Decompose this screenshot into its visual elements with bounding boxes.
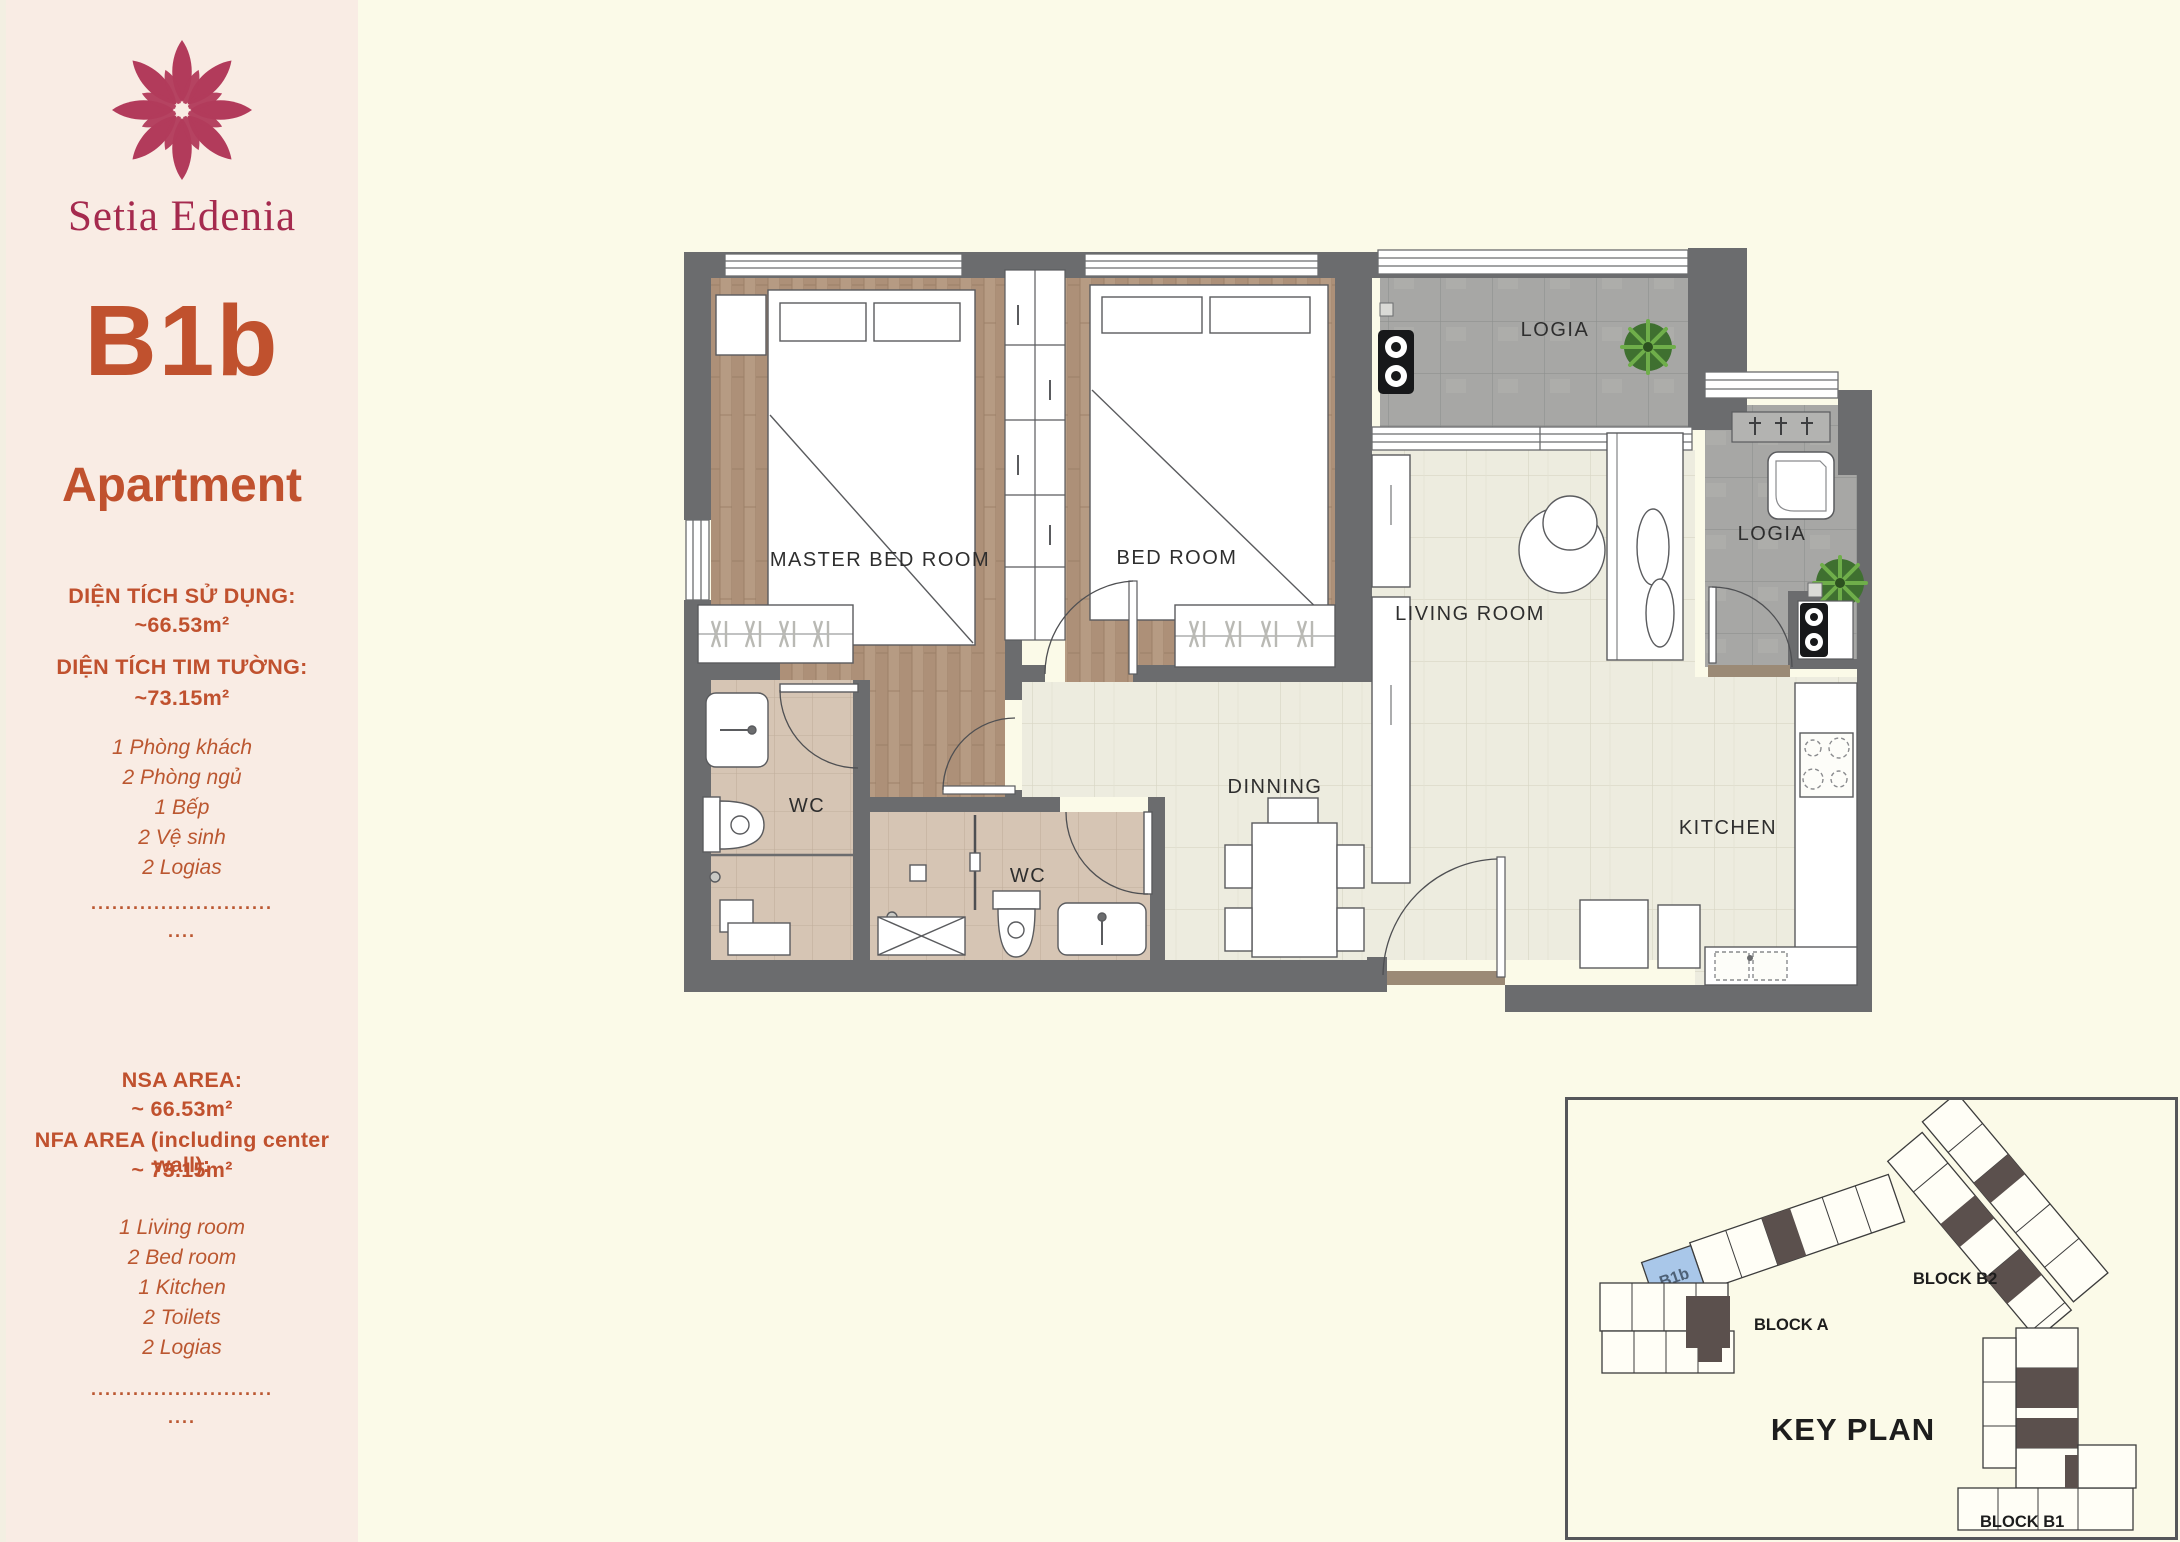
list-item: 1 Bếp bbox=[6, 793, 358, 823]
list-item: 2 Bed room bbox=[6, 1243, 358, 1273]
floor-plan: MASTER BED ROOM BED ROOM LOGIA LIVING RO… bbox=[660, 165, 1890, 1025]
wall-area-label: DIỆN TÍCH TIM TƯỜNG: bbox=[6, 655, 358, 680]
room-label-wc2: WC bbox=[1010, 865, 1046, 887]
nsa-area-value: ~ 66.53m² bbox=[6, 1097, 358, 1122]
key-plan-title: KEY PLAN bbox=[1771, 1412, 1935, 1447]
list-item: 1 Kitchen bbox=[6, 1273, 358, 1303]
plant-icon bbox=[1622, 321, 1674, 373]
bed bbox=[768, 290, 975, 645]
block-b2-label: BLOCK B2 bbox=[1913, 1270, 1997, 1288]
key-plan-panel: B1b BLOCK A bbox=[1565, 1097, 2178, 1540]
threshold bbox=[1708, 665, 1790, 677]
bedroom2-furniture bbox=[1090, 285, 1335, 667]
chair bbox=[1225, 845, 1252, 888]
nsa-area-label: NSA AREA: bbox=[6, 1068, 358, 1093]
dotted-divider: .... bbox=[6, 1407, 358, 1428]
list-item: 2 Logias bbox=[6, 853, 358, 883]
bed bbox=[1090, 285, 1328, 620]
list-item: 2 Toilets bbox=[6, 1303, 358, 1333]
room-label-wc1: WC bbox=[789, 795, 825, 817]
dining-table bbox=[1252, 823, 1337, 957]
cabinet bbox=[1658, 905, 1700, 968]
dotted-divider: .......................... bbox=[6, 1379, 358, 1400]
closet-strip bbox=[1005, 270, 1065, 640]
water-heater bbox=[728, 923, 790, 955]
chair bbox=[1337, 908, 1364, 951]
nightstand bbox=[716, 295, 766, 355]
list-item: 2 Vệ sinh bbox=[6, 823, 358, 853]
brand-name: Setia Edenia bbox=[6, 192, 358, 241]
laundry-tub bbox=[1768, 452, 1834, 519]
list-item: 1 Phòng khách bbox=[6, 733, 358, 763]
brand-logo-flower-icon bbox=[6, 22, 358, 192]
toilet-tank bbox=[703, 797, 720, 852]
list-item: 2 Phòng ngủ bbox=[6, 763, 358, 793]
room-label-living-room: LIVING ROOM bbox=[1395, 603, 1545, 625]
block-b1-label: BLOCK B1 bbox=[1980, 1513, 2064, 1531]
unit-type-label: Apartment bbox=[6, 458, 358, 513]
entrance-threshold bbox=[1387, 971, 1505, 985]
usable-area-label: DIỆN TÍCH SỬ DỤNG: bbox=[6, 584, 358, 609]
coffee-table bbox=[1543, 496, 1597, 550]
list-item: 2 Logias bbox=[6, 1333, 358, 1363]
shower-head bbox=[910, 865, 926, 881]
chair bbox=[1225, 908, 1252, 951]
block-a-label: BLOCK A bbox=[1754, 1316, 1829, 1334]
room-list-vietnamese: 1 Phòng khách 2 Phòng ngủ 1 Bếp 2 Vệ sin… bbox=[6, 733, 358, 883]
key-plan-block-b1 bbox=[1958, 1328, 2136, 1530]
room-label-kitchen: KITCHEN bbox=[1679, 817, 1777, 839]
room-label-bedroom: BED ROOM bbox=[1117, 547, 1238, 569]
key-plan-block-b2 bbox=[1883, 1100, 2112, 1339]
sidebar: Setia Edenia B1b Apartment DIỆN TÍCH SỬ … bbox=[0, 0, 358, 1542]
chair bbox=[1337, 845, 1364, 888]
dotted-divider: .......................... bbox=[6, 893, 358, 914]
fridge bbox=[1580, 900, 1648, 968]
tv-cabinet bbox=[1372, 597, 1410, 883]
room-label-logia1: LOGIA bbox=[1521, 319, 1590, 341]
room-label-logia2: LOGIA bbox=[1738, 523, 1807, 545]
room-label-dining: DINNING bbox=[1228, 776, 1323, 798]
dotted-divider: .... bbox=[6, 921, 358, 942]
key-plan-block-a: B1b BLOCK A bbox=[1600, 1174, 1905, 1373]
usable-area-value: ~66.53m² bbox=[6, 613, 358, 638]
toilet-tank bbox=[993, 891, 1040, 909]
chair bbox=[1268, 798, 1318, 824]
wall-area-value: ~73.15m² bbox=[6, 686, 358, 711]
page-background: { "sidebar": { "brand": "Setia Edenia", … bbox=[0, 0, 2180, 1542]
unit-code: B1b bbox=[6, 284, 358, 399]
list-item: 1 Living room bbox=[6, 1213, 358, 1243]
room-label-master-bedroom: MASTER BED ROOM bbox=[770, 549, 990, 571]
kitchen-counter-right bbox=[1795, 683, 1857, 985]
nfa-area-value: ~ 73.15m² bbox=[6, 1158, 358, 1183]
room-list-english: 1 Living room 2 Bed room 1 Kitchen 2 Toi… bbox=[6, 1213, 358, 1363]
